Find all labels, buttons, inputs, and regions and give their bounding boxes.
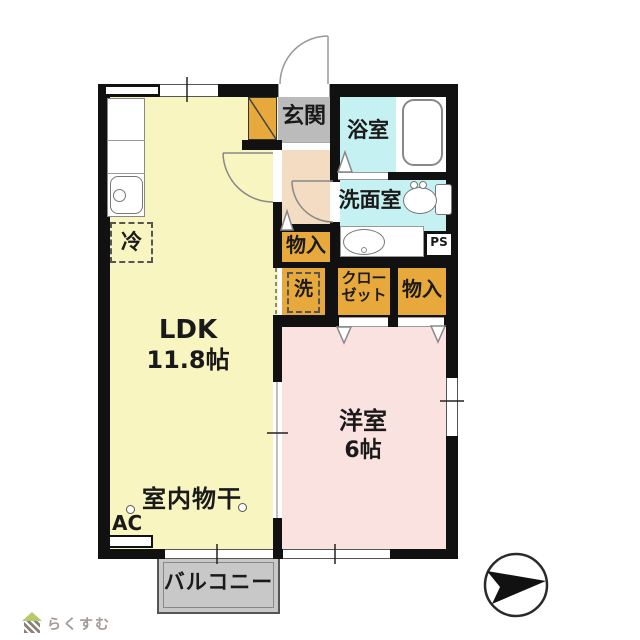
storage-bedroom-label: 物入 xyxy=(398,278,446,301)
kitchen-counter-line1 xyxy=(107,140,145,141)
wall-bath-washroom xyxy=(388,172,446,180)
closet-label: クロー ゼット xyxy=(338,270,390,305)
compass-circle xyxy=(485,554,547,616)
wall-entrance-step xyxy=(242,140,282,150)
wall-ldk-bed-lower xyxy=(273,518,282,549)
pipe-space-label: PS xyxy=(424,236,454,250)
bath-door-sill xyxy=(338,172,388,180)
bedroom-east-window xyxy=(446,378,458,436)
entrance-door-gap xyxy=(278,84,330,97)
floor-plan: 玄関 浴室 洗面室 物入 洗 クロー ゼット 物入 PS LDK 11.8帖 洋… xyxy=(0,0,640,640)
wall-closet-divider xyxy=(390,266,398,317)
shoe-cabinet xyxy=(248,97,277,140)
ac-unit xyxy=(108,535,153,548)
closet-door-sill xyxy=(339,317,388,327)
bedroom-south-window xyxy=(283,549,390,559)
compass-arrow-icon xyxy=(487,571,546,604)
ldk-name: LDK xyxy=(159,315,217,345)
wall-hall-storage xyxy=(273,224,330,232)
closet-label-line1: クロー xyxy=(341,269,386,287)
wall-hall-ldk xyxy=(273,202,282,264)
kitchen-window xyxy=(106,87,158,94)
closet-label-line2: ゼット xyxy=(341,286,386,304)
refrigerator-label: 冷 xyxy=(110,230,153,254)
sink-drain xyxy=(113,189,126,202)
logo-house-icon xyxy=(22,612,42,633)
wall-bottom xyxy=(98,549,458,559)
toilet-tank xyxy=(435,184,452,215)
ldk-top-window xyxy=(160,84,218,97)
hallway-area xyxy=(282,150,330,224)
kitchen-counter-line2 xyxy=(107,173,145,174)
ldk-label: LDK 11.8帖 xyxy=(118,316,258,376)
ldk-door-opening xyxy=(273,150,282,202)
western-room-label: 洋室 6帖 xyxy=(303,408,423,463)
western-room-name: 洋室 xyxy=(339,407,387,435)
indoor-drying-label: 室内物干 xyxy=(137,486,247,514)
logo-house-roof xyxy=(22,612,42,621)
logo-house-body xyxy=(24,621,40,633)
basin-drain xyxy=(361,247,367,253)
storage-hall-label: 物入 xyxy=(282,234,330,257)
washer-space-label: 洗 xyxy=(282,279,325,301)
entrance-label: 玄関 xyxy=(278,104,330,129)
bathroom-label: 浴室 xyxy=(338,118,398,142)
washroom-label: 洗面室 xyxy=(331,188,409,212)
logo-text: らくすむ xyxy=(47,614,111,634)
balcony-window xyxy=(165,549,273,559)
bathtub xyxy=(402,99,443,166)
entrance-step-edge xyxy=(282,142,330,150)
ac-label: AC xyxy=(112,512,156,535)
wall-washer-closet xyxy=(325,262,338,317)
western-room-size: 6帖 xyxy=(344,438,381,463)
balcony-label: バルコニー xyxy=(157,570,280,594)
storage2-door-sill xyxy=(398,317,444,327)
entrance-door-arc xyxy=(280,36,328,84)
ldk-bed-partition-opening xyxy=(273,382,282,518)
ldk-size: 11.8帖 xyxy=(146,346,229,374)
